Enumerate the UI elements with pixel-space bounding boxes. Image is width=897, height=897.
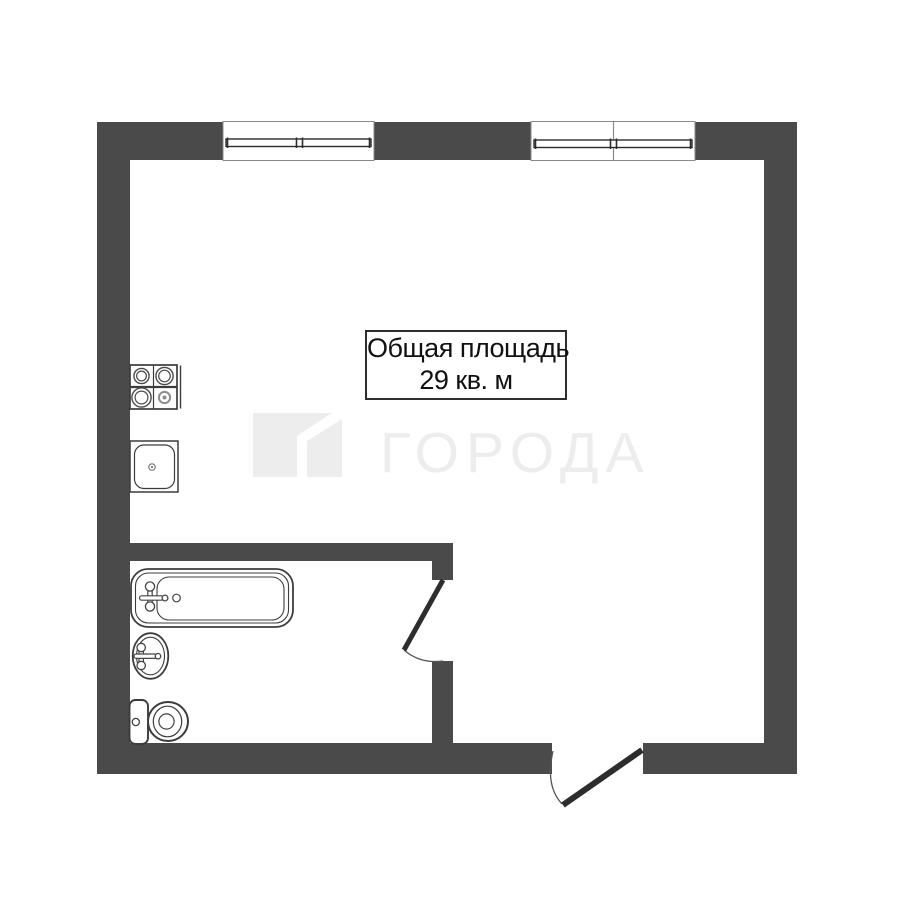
bathroom-door (404, 580, 443, 662)
area-label-box: Общая площадь 29 кв. м (365, 330, 567, 400)
window-right (531, 122, 695, 161)
floor-plan: Общая площадь 29 кв. м ГОРОДА (0, 0, 897, 897)
kitchen-sink-icon (130, 441, 178, 492)
bathroom-wall-upper-jamb (432, 561, 453, 580)
window-left (223, 122, 374, 161)
bathroom-wall-lower-jamb (432, 661, 453, 743)
area-label-title: Общая площадь (367, 332, 565, 365)
area-label-value: 29 кв. м (367, 365, 565, 395)
wall-bottom (97, 743, 797, 774)
wall-left (97, 122, 130, 774)
stove-icon (130, 365, 181, 409)
bathtub-icon (131, 569, 293, 627)
toilet-button (132, 718, 139, 725)
watermark-logo-icon (253, 413, 342, 477)
bathtub-drain (173, 594, 181, 602)
washbasin-icon (133, 633, 169, 679)
wall-right (764, 122, 797, 774)
toilet-icon (130, 700, 189, 744)
bathroom-wall-horizontal (97, 543, 453, 561)
watermark-text: ГОРОДА (380, 420, 650, 486)
